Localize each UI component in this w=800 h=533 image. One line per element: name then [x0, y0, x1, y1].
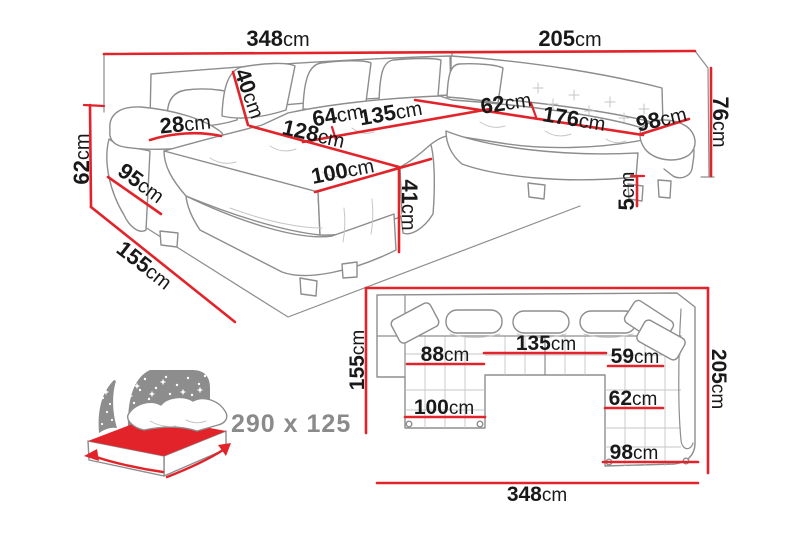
night-sky-crescent [99, 380, 117, 433]
tv-chaise-seat-width: 88cm [421, 343, 470, 366]
sofa-foot [300, 278, 317, 296]
back-pillow [379, 59, 441, 102]
sofa-foot [160, 231, 178, 247]
dim-seat-height: 41cm [397, 179, 422, 230]
top-view-sketch [377, 293, 695, 466]
top-view: 155cm 205cm 348cm 88cm 135cm 59cm 100cm … [346, 288, 730, 506]
tv-chaise-overall-width: 100cm [414, 396, 474, 419]
sofa-dimensions-diagram: 348cm 205cm 62cm 155cm 95cm 28cm 40cm 64… [0, 0, 800, 533]
dim-overall-width-right: 205cm [538, 26, 601, 51]
tv-right-depth: 205cm [707, 349, 730, 409]
sofa-foot [528, 183, 545, 199]
tv-left-depth: 155cm [346, 330, 369, 390]
tv-right-seat-width: 59cm [611, 345, 660, 368]
dim-leg-height: 5cm [614, 172, 639, 211]
sofa-foot [658, 180, 671, 198]
dim-overall-height: 76cm [708, 96, 733, 147]
tv-middle-seat-width: 135cm [516, 332, 576, 355]
sofa-sketch [107, 56, 695, 296]
dim-side-height: 62cm [69, 133, 94, 184]
tv-right-overall-width: 98cm [610, 441, 659, 464]
sofa-foot [342, 262, 357, 278]
tv-right-seat-inner-width: 62cm [609, 387, 658, 410]
foot-mark [477, 421, 483, 427]
diagram-canvas: 348cm 205cm 62cm 155cm 95cm 28cm 40cm 64… [0, 0, 800, 533]
perspective-view: 348cm 205cm 62cm 155cm 95cm 28cm 40cm 64… [69, 26, 733, 322]
sleeping-area-size: 290 x 125 [231, 410, 351, 438]
dim-overall-width-left: 348cm [246, 26, 309, 51]
back-cushion [513, 311, 569, 333]
tv-overall-width: 348cm [507, 483, 567, 506]
sleeping-function-icon: 290 x 125 [84, 370, 351, 477]
back-cushion [446, 310, 502, 333]
foot-mark [406, 421, 412, 427]
dim-line-348 [104, 51, 695, 54]
